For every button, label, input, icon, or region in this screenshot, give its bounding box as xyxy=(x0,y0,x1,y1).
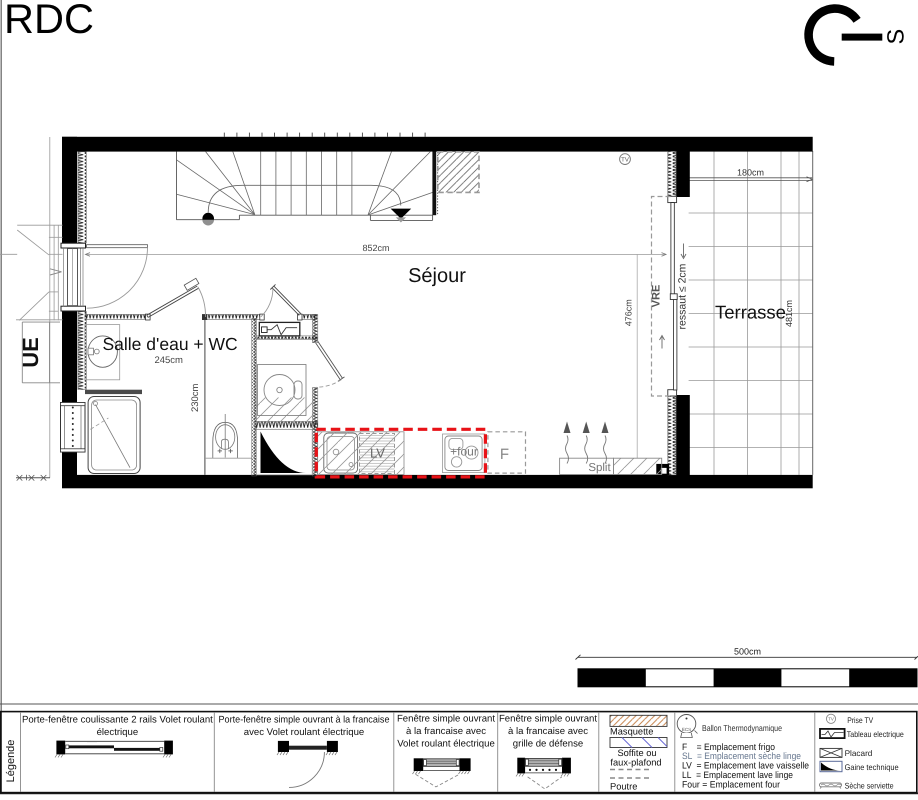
svg-text:à la francaise avec: à la francaise avec xyxy=(508,726,588,737)
svg-text:Salle d'eau + WC: Salle d'eau + WC xyxy=(103,334,238,354)
svg-text:Fenêtre simple ouvrant: Fenêtre simple ouvrant xyxy=(499,714,597,725)
svg-text:Split: Split xyxy=(588,462,611,474)
svg-text:LV: LV xyxy=(370,446,385,461)
svg-text:245cm: 245cm xyxy=(154,355,183,366)
svg-text:Soffite ou: Soffite ou xyxy=(617,748,656,758)
svg-text:Placard: Placard xyxy=(845,749,873,758)
svg-text:à la francaise avec: à la francaise avec xyxy=(406,726,486,737)
svg-text:UE: UE xyxy=(18,337,43,368)
svg-text:Séjour: Séjour xyxy=(408,265,466,287)
svg-text:Poutre: Poutre xyxy=(610,782,637,792)
svg-text:RDC: RDC xyxy=(4,0,94,42)
svg-text:Terrasse: Terrasse xyxy=(715,302,786,323)
svg-text:852cm: 852cm xyxy=(362,243,389,253)
svg-text:grille de défense: grille de défense xyxy=(513,739,583,750)
svg-text:Fenêtre simple ouvrant: Fenêtre simple ouvrant xyxy=(397,714,495,725)
svg-text:Gaine technique: Gaine technique xyxy=(845,763,899,772)
svg-text:180cm: 180cm xyxy=(737,168,764,178)
svg-text:Porte-fenêtre simple ouvrant à: Porte-fenêtre simple ouvrant à la franca… xyxy=(219,714,390,725)
svg-text:500cm: 500cm xyxy=(734,647,761,657)
svg-text:Prise TV: Prise TV xyxy=(847,716,873,725)
svg-text:avec Volet roulant électrique: avec Volet roulant électrique xyxy=(244,727,365,738)
svg-text:TV: TV xyxy=(621,156,629,163)
svg-text:TV: TV xyxy=(828,717,834,722)
svg-text:Porte-fenêtre coulissante 2 ra: Porte-fenêtre coulissante 2 rails Volet … xyxy=(22,714,213,725)
svg-text:476cm: 476cm xyxy=(624,299,634,326)
svg-text:Four = Emplacement four: Four = Emplacement four xyxy=(682,779,780,789)
svg-text:faux-plafond: faux-plafond xyxy=(610,757,661,767)
svg-text:Tableau electrique: Tableau electrique xyxy=(847,730,904,739)
svg-text:ressaut ≤ 2cm: ressaut ≤ 2cm xyxy=(677,263,689,329)
svg-text:électrique: électrique xyxy=(97,727,139,738)
svg-text:ECS: ECS xyxy=(682,727,691,732)
svg-text:Sèche serviette: Sèche serviette xyxy=(845,781,894,790)
svg-text:+four: +four xyxy=(450,445,478,459)
svg-text:F: F xyxy=(500,446,509,463)
svg-text:230cm: 230cm xyxy=(190,383,201,412)
svg-text:Masquette: Masquette xyxy=(610,727,653,737)
svg-text:Ballon Thermodynamique: Ballon Thermodynamique xyxy=(702,723,782,733)
svg-text:Légende: Légende xyxy=(5,740,17,783)
svg-text:VRE: VRE xyxy=(651,285,663,308)
svg-text:Volet roulant électrique: Volet roulant électrique xyxy=(397,739,495,750)
svg-text:S: S xyxy=(883,29,909,45)
